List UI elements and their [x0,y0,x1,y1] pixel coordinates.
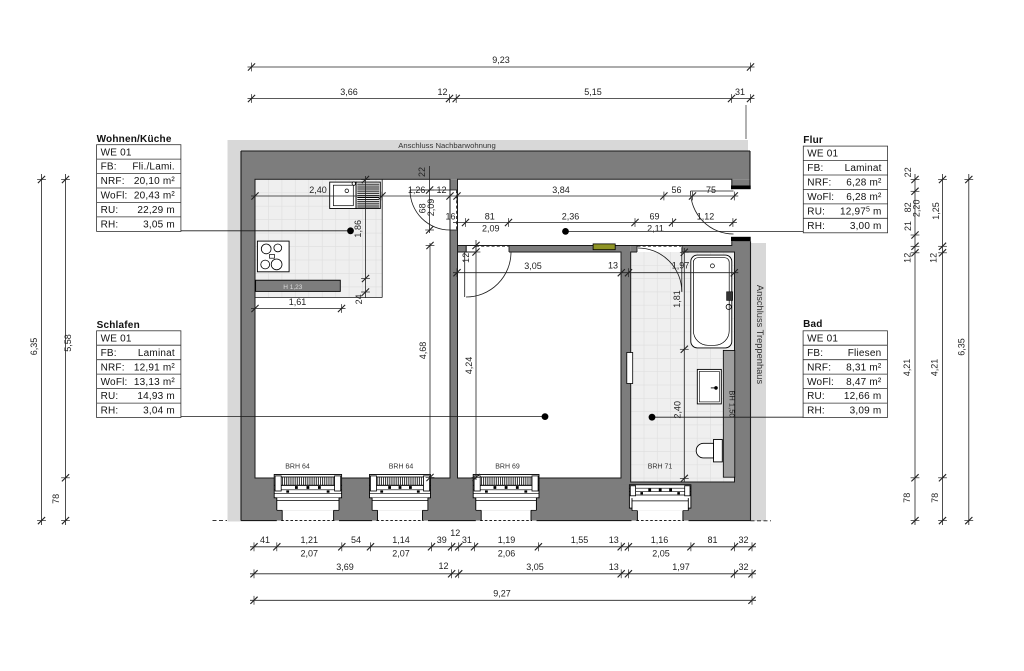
svg-text:6,28 m²: 6,28 m² [846,178,882,189]
svg-text:BRH 71: BRH 71 [648,463,673,470]
svg-text:BH 1,50: BH 1,50 [727,390,736,417]
svg-text:8,31 m²: 8,31 m² [846,362,882,373]
svg-text:12: 12 [903,253,913,263]
svg-text:2,05: 2,05 [652,549,670,559]
svg-text:4,21: 4,21 [902,359,912,377]
svg-text:3,04 m: 3,04 m [143,406,175,417]
svg-text:BRH 64: BRH 64 [285,463,310,470]
svg-text:13: 13 [608,261,618,271]
svg-text:1,16: 1,16 [651,535,669,545]
svg-text:9,27: 9,27 [493,589,511,599]
svg-text:2,36: 2,36 [562,212,580,222]
svg-text:Anschluss Treppenhaus: Anschluss Treppenhaus [755,285,765,385]
svg-text:1,19: 1,19 [498,535,516,545]
svg-text:NRF:: NRF: [807,178,831,189]
svg-text:2,06: 2,06 [498,549,516,559]
svg-text:4,68: 4,68 [418,342,428,360]
svg-text:21: 21 [903,221,913,231]
svg-text:5,58: 5,58 [63,334,73,352]
svg-text:Fli./Lami.: Fli./Lami. [132,162,175,173]
svg-text:RU:: RU: [807,207,825,218]
svg-text:78: 78 [51,494,61,504]
svg-text:3,05 m: 3,05 m [143,220,175,231]
svg-text:12: 12 [437,87,447,97]
svg-text:81: 81 [485,212,495,222]
svg-text:12,91 m²: 12,91 m² [134,362,176,373]
svg-text:13: 13 [609,562,619,572]
svg-text:24: 24 [354,294,364,304]
svg-text:WoFl:: WoFl: [101,191,128,202]
svg-text:5,15: 5,15 [584,87,602,97]
svg-text:3,00 m: 3,00 m [850,221,882,232]
svg-text:1,61: 1,61 [289,297,307,307]
svg-text:2,09: 2,09 [482,223,500,233]
svg-text:FB:: FB: [807,348,823,359]
svg-text:Schlafen: Schlafen [97,320,140,331]
svg-text:22: 22 [417,167,427,177]
svg-text:BRH 69: BRH 69 [495,463,520,470]
svg-text:1,97: 1,97 [672,261,690,271]
svg-text:6,35: 6,35 [956,338,966,356]
svg-text:BRH 64: BRH 64 [389,463,414,470]
svg-text:1,55: 1,55 [571,535,589,545]
svg-text:12,975 m: 12,975 m [840,207,882,218]
svg-text:RH:: RH: [807,221,825,232]
svg-text:Wohnen/Küche: Wohnen/Küche [97,134,172,145]
svg-text:2,20: 2,20 [911,200,921,218]
svg-text:54: 54 [351,535,361,545]
svg-text:6,35: 6,35 [29,338,39,356]
svg-text:56: 56 [671,185,681,195]
svg-text:2,07: 2,07 [392,549,410,559]
svg-text:FB:: FB: [807,163,823,174]
svg-text:1,12: 1,12 [697,211,715,221]
svg-text:1,86: 1,86 [353,220,363,238]
svg-text:WoFl:: WoFl: [101,377,128,388]
svg-text:RU:: RU: [101,205,119,216]
svg-text:14,93 m: 14,93 m [137,391,175,402]
svg-text:RU:: RU: [101,391,119,402]
svg-text:Bad: Bad [803,319,823,330]
svg-text:12: 12 [438,561,448,571]
svg-text:NRF:: NRF: [101,176,125,187]
svg-text:75: 75 [706,185,716,195]
svg-text:Fliesen: Fliesen [848,348,882,359]
svg-text:22,29 m: 22,29 m [137,205,175,216]
svg-text:32: 32 [738,562,748,572]
svg-text:FB:: FB: [101,348,117,359]
svg-text:2,09: 2,09 [426,199,436,217]
svg-text:3,66: 3,66 [340,87,358,97]
svg-text:WE 01: WE 01 [101,147,132,158]
svg-text:12: 12 [450,528,460,538]
svg-text:2,11: 2,11 [647,223,664,233]
svg-text:78: 78 [902,493,912,503]
svg-text:41: 41 [260,535,270,545]
svg-text:16: 16 [445,212,455,222]
svg-text:3,05: 3,05 [526,562,544,572]
svg-text:NRF:: NRF: [807,362,831,373]
svg-text:3,84: 3,84 [552,185,570,195]
svg-text:6,28 m²: 6,28 m² [846,192,882,203]
svg-text:RH:: RH: [101,220,119,231]
svg-text:78: 78 [930,493,940,503]
svg-text:20,43 m²: 20,43 m² [134,191,176,202]
svg-text:3,69: 3,69 [336,562,354,572]
svg-text:1,97: 1,97 [672,562,690,572]
svg-text:12: 12 [461,253,471,263]
svg-text:9,23: 9,23 [492,55,510,65]
svg-text:31: 31 [462,535,472,545]
svg-text:1,14: 1,14 [392,535,410,545]
svg-text:13,13 m²: 13,13 m² [134,377,176,388]
svg-text:4,21: 4,21 [929,359,939,377]
svg-text:12: 12 [436,185,446,195]
svg-text:RH:: RH: [807,406,825,417]
svg-text:12,66 m: 12,66 m [844,391,882,402]
svg-text:4,24: 4,24 [464,357,474,375]
svg-text:WoFl:: WoFl: [807,192,834,203]
svg-text:81: 81 [707,535,717,545]
svg-text:WE 01: WE 01 [807,149,838,160]
svg-text:2,40: 2,40 [672,401,682,419]
svg-text:3,09 m: 3,09 m [850,406,882,417]
svg-text:WE 01: WE 01 [101,333,132,344]
svg-text:FB:: FB: [101,162,117,173]
svg-text:1,25: 1,25 [931,202,941,220]
svg-text:WE 01: WE 01 [807,333,838,344]
svg-text:NRF:: NRF: [101,362,125,373]
svg-text:13: 13 [609,535,619,545]
svg-text:8,47 m²: 8,47 m² [846,377,882,388]
svg-text:RH:: RH: [101,406,119,417]
svg-text:1,81: 1,81 [672,290,682,308]
svg-text:Laminat: Laminat [845,163,882,174]
svg-text:12: 12 [928,253,938,263]
svg-text:32: 32 [738,535,748,545]
svg-text:RU:: RU: [807,391,825,402]
svg-text:69: 69 [649,212,659,222]
svg-text:WoFl:: WoFl: [807,377,834,388]
svg-text:31: 31 [735,87,745,97]
svg-text:3,05: 3,05 [524,261,542,271]
svg-text:Flur: Flur [803,135,823,146]
svg-text:20,10 m²: 20,10 m² [134,176,176,187]
svg-text:1,26: 1,26 [408,185,426,195]
svg-text:Anschluss Nachbarwohnung: Anschluss Nachbarwohnung [398,141,495,150]
svg-text:H 1,23: H 1,23 [283,284,303,291]
svg-text:1,21: 1,21 [301,535,319,545]
svg-text:22: 22 [903,167,913,177]
svg-text:2,40: 2,40 [309,185,327,195]
svg-text:Laminat: Laminat [138,348,175,359]
svg-text:2,07: 2,07 [301,549,319,559]
svg-text:39: 39 [437,535,447,545]
